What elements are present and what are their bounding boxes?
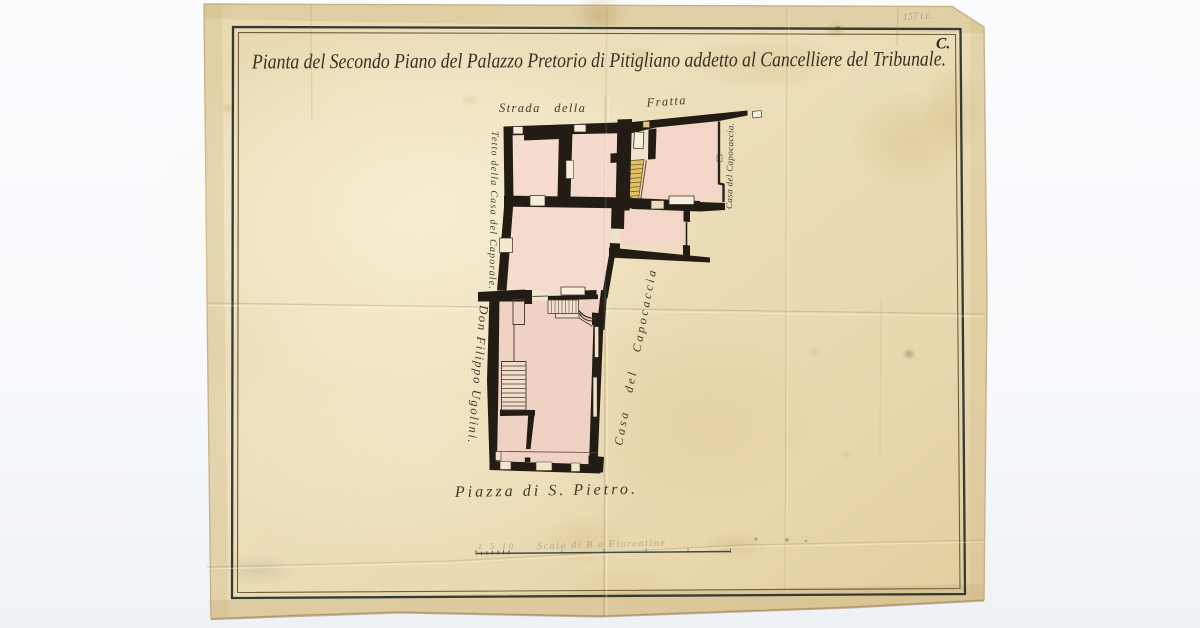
svg-text:Fratta: Fratta [645,93,687,110]
svg-text:Pianta del Secondo Piano del P: Pianta del Secondo Piano del Palazzo Pre… [251,46,946,73]
svg-text:Piazza di S. Pietro.: Piazza di S. Pietro. [454,481,635,501]
svg-text:Strada della: Strada della [499,101,586,115]
svg-text:C.: C. [936,36,950,53]
svg-text:1 5 10: 1 5 10 [478,542,516,551]
svg-text:Casa del Capocaccia.: Casa del Capocaccia. [724,123,735,209]
svg-text:157 t.c.: 157 t.c. [902,10,932,23]
